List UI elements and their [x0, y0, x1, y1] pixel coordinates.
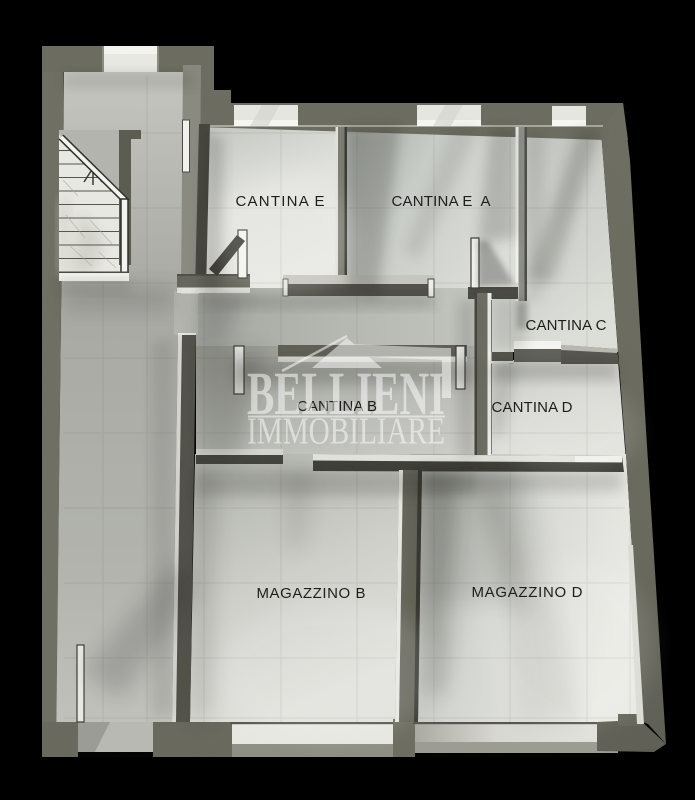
svg-text:MAGAZZINO D: MAGAZZINO D [472, 584, 583, 601]
svg-text:CANTINA E: CANTINA E [236, 193, 325, 210]
svg-text:CANTINA C: CANTINA C [526, 317, 607, 334]
svg-text:MAGAZZINO B: MAGAZZINO B [257, 585, 366, 602]
svg-text:CANTINA E A: CANTINA E A [392, 193, 491, 210]
svg-text:IMMOBILIARE: IMMOBILIARE [247, 411, 445, 453]
svg-text:CANTINA D: CANTINA D [492, 399, 573, 416]
